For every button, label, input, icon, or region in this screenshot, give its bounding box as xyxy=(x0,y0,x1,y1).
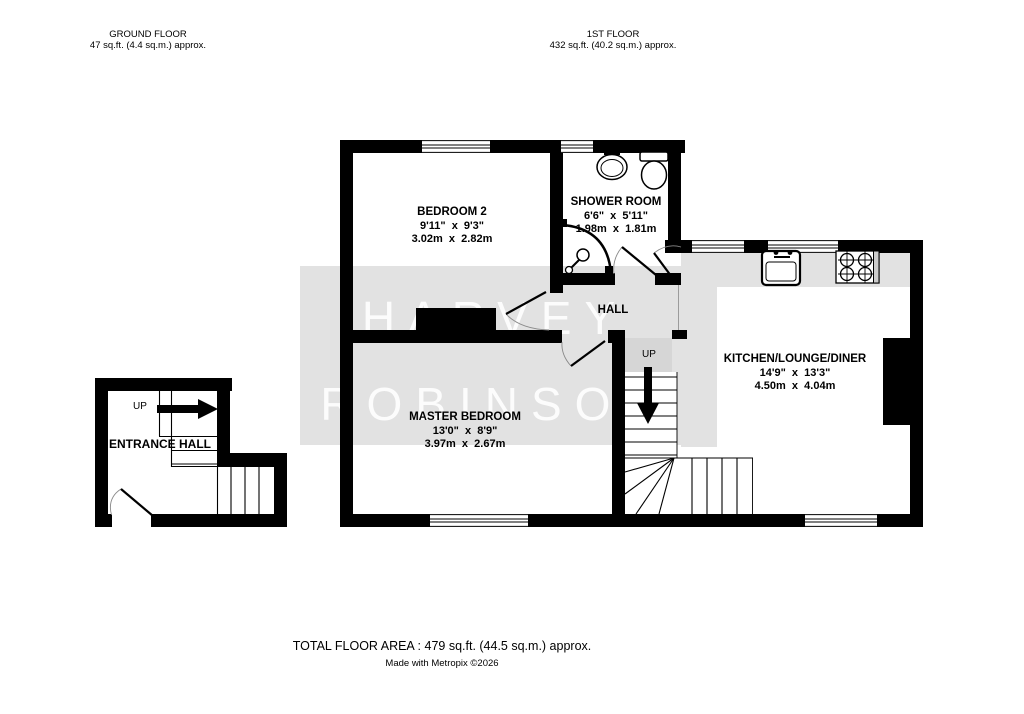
ground-floor-header: GROUND FLOOR 47 sq.ft. (4.4 sq.m.) appro… xyxy=(48,29,248,51)
floorplan-page: GROUND FLOOR 47 sq.ft. (4.4 sq.m.) appro… xyxy=(0,0,1024,714)
kitchen-name: KITCHEN/LOUNGE/DINER xyxy=(695,353,895,367)
first-floor-area: 432 sq.ft. (40.2 sq.m.) approx. xyxy=(513,40,713,51)
entrance-hall-label: ENTRANCE HALL xyxy=(102,438,218,452)
basin-icon xyxy=(597,151,627,180)
ground-floor-walls xyxy=(95,378,287,527)
bedroom2-label: BEDROOM 2 9'11" x 9'3" 3.02m x 2.82m xyxy=(352,206,552,247)
hall-label: HALL xyxy=(578,304,648,318)
front-door xyxy=(110,489,153,516)
first-floor-title: 1ST FLOOR xyxy=(513,29,713,40)
bedroom2-window xyxy=(422,140,490,153)
shower-room-door xyxy=(614,247,656,275)
up-arrow-icon xyxy=(157,399,218,419)
master-bedroom-imperial: 13'0" x 8'9" xyxy=(365,425,565,439)
kitchen-bottom-window xyxy=(805,514,877,527)
footer: TOTAL FLOOR AREA : 479 sq.ft. (44.5 sq.m… xyxy=(242,639,642,670)
master-bedroom-label: MASTER BEDROOM 13'0" x 8'9" 3.97m x 2.67… xyxy=(365,411,565,452)
kitchen-window-1 xyxy=(692,240,744,253)
shower-room-name: SHOWER ROOM xyxy=(543,196,689,210)
toilet-icon xyxy=(640,152,668,189)
first-floor-header: 1ST FLOOR 432 sq.ft. (40.2 sq.m.) approx… xyxy=(513,29,713,51)
bedroom2-imperial: 9'11" x 9'3" xyxy=(352,220,552,234)
shower-room-metric: 1.98m x 1.81m xyxy=(543,223,689,237)
hob-icon xyxy=(836,251,879,283)
chimney-breast-bedroom2 xyxy=(416,308,496,333)
bedroom2-name: BEDROOM 2 xyxy=(352,206,552,220)
kitchen-sink-icon xyxy=(762,250,800,285)
master-bedroom-metric: 3.97m x 2.67m xyxy=(365,438,565,452)
kitchen-label: KITCHEN/LOUNGE/DINER 14'9" x 13'3" 4.50m… xyxy=(695,353,895,394)
entrance-hall-name: ENTRANCE HALL xyxy=(102,438,218,452)
kitchen-imperial: 14'9" x 13'3" xyxy=(695,367,895,381)
shower-room-imperial: 6'6" x 5'11" xyxy=(543,210,689,224)
ground-floor-title: GROUND FLOOR xyxy=(48,29,248,40)
shower-room-window xyxy=(561,140,593,153)
master-bedroom-door xyxy=(562,341,605,366)
kitchen-metric: 4.50m x 4.04m xyxy=(695,380,895,394)
ground-floor-area: 47 sq.ft. (4.4 sq.m.) approx. xyxy=(48,40,248,51)
ground-up-label: UP xyxy=(126,401,154,412)
master-bedroom-window xyxy=(430,514,528,527)
metropix-credit: Made with Metropix ©2026 xyxy=(242,657,642,670)
hall-name: HALL xyxy=(578,304,648,318)
bedroom2-metric: 3.02m x 2.82m xyxy=(352,233,552,247)
first-up-label: UP xyxy=(635,349,663,360)
total-floor-area: TOTAL FLOOR AREA : 479 sq.ft. (44.5 sq.m… xyxy=(242,639,642,654)
bedroom2-door xyxy=(506,292,549,330)
master-bedroom-name: MASTER BEDROOM xyxy=(365,411,565,425)
shower-room-label: SHOWER ROOM 6'6" x 5'11" 1.98m x 1.81m xyxy=(543,196,689,237)
